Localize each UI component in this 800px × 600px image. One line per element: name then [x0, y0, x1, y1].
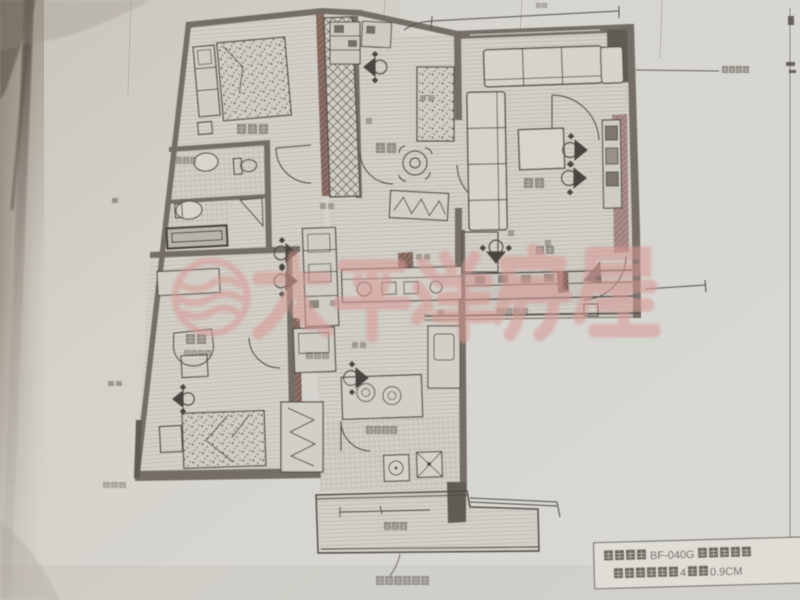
svg-text:4: 4 [680, 567, 686, 579]
svg-text:0.9CM: 0.9CM [710, 566, 743, 579]
svg-text:BF-040G: BF-040G [650, 549, 695, 562]
